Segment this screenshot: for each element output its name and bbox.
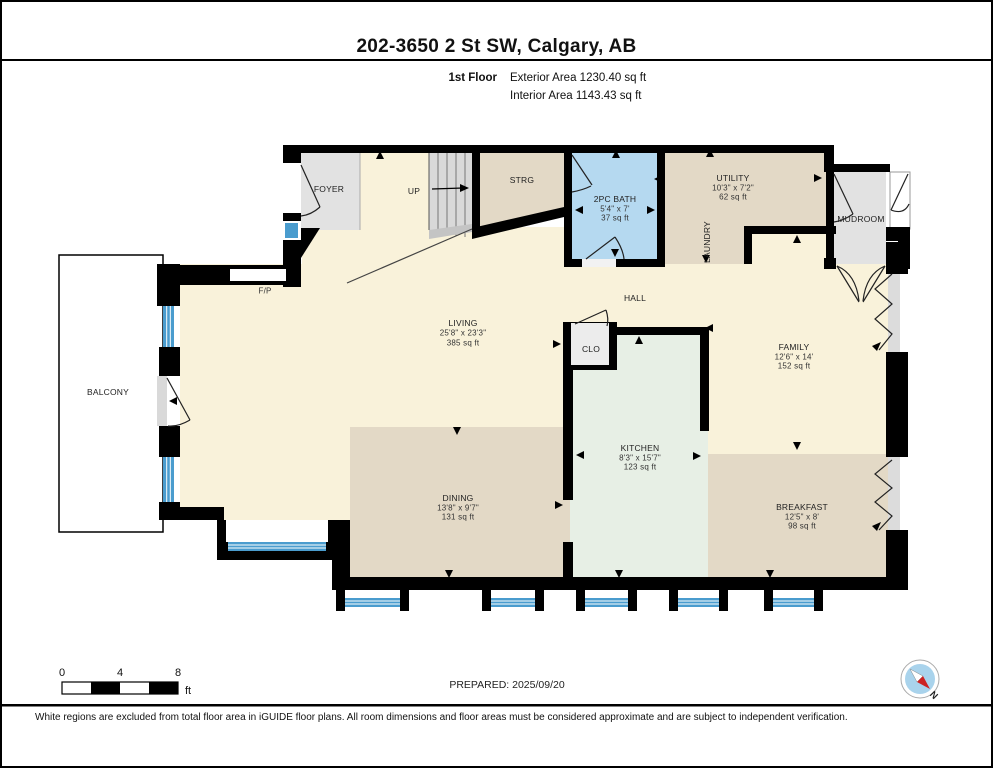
room-label-hall: HALL — [624, 293, 646, 303]
room-area-bath: 37 sq ft — [601, 214, 629, 223]
room-label-dining: DINING — [443, 493, 474, 503]
exterior-area: Exterior Area 1230.40 sq ft — [510, 72, 646, 84]
window — [773, 598, 814, 607]
floorplan-page: 202-3650 2 St SW, Calgary, AB 1st Floor … — [0, 0, 993, 768]
page-title: 202-3650 2 St SW, Calgary, AB — [2, 36, 991, 58]
window — [491, 598, 535, 607]
window — [678, 598, 719, 607]
room-fills — [59, 153, 910, 590]
room-area-family: 152 sq ft — [778, 362, 811, 371]
room-label-laundry: LAUNDRY — [702, 221, 712, 263]
room-area-kitchen: 123 sq ft — [624, 463, 657, 472]
bay-window-glass — [228, 542, 326, 551]
window — [285, 223, 298, 238]
room-dims-living: 25'8" x 23'3" — [440, 329, 486, 338]
room-label-foyer: FOYER — [314, 184, 344, 194]
bath-door-opening — [582, 259, 616, 267]
breakfast-folding-door-glass — [888, 457, 900, 535]
room-label-family: FAMILY — [779, 342, 810, 352]
room-label-balcony: BALCONY — [87, 387, 129, 397]
floor-label: 1st Floor — [382, 72, 497, 84]
fireplace-inset — [230, 269, 286, 281]
stairs-floor — [429, 153, 472, 230]
room-dims-family: 12'6" x 14' — [775, 353, 814, 362]
room-label-clo: CLO — [582, 344, 600, 354]
room-dims-utility: 10'3" x 7'2" — [712, 184, 754, 193]
room-area-utility: 62 sq ft — [719, 193, 747, 202]
window — [585, 598, 628, 607]
room-label-strg: STRG — [510, 175, 534, 185]
room-label-kitchen: KITCHEN — [621, 443, 660, 453]
room-area-living: 385 sq ft — [447, 339, 480, 348]
room-dims-kitchen: 8'3" x 15'7" — [619, 454, 661, 463]
interior-area: Interior Area 1143.43 sq ft — [510, 90, 641, 102]
floorplan-drawing — [2, 2, 993, 768]
room-label-living: LIVING — [448, 318, 477, 328]
room-area-dining: 131 sq ft — [442, 513, 475, 522]
stairs-up-label: UP — [408, 186, 420, 196]
fireplace-label: F/P — [258, 287, 271, 296]
window — [163, 457, 174, 502]
disclaimer-text: White regions are excluded from total fl… — [35, 712, 848, 723]
room-area-breakfast: 98 sq ft — [788, 522, 816, 531]
scale-start: 0 — [59, 667, 65, 679]
scale-unit: ft — [185, 685, 191, 697]
bay-window-interior — [226, 520, 328, 542]
room-dims-bath: 5'4" x 7' — [600, 205, 630, 214]
room-label-bath: 2PC BATH — [594, 194, 637, 204]
room-label-breakfast: BREAKFAST — [776, 502, 828, 512]
mudroom-landing — [890, 172, 910, 229]
room-dims-breakfast: 12'5" x 8' — [785, 513, 819, 522]
window — [163, 306, 174, 347]
window — [345, 598, 400, 607]
family-folding-door-glass — [888, 270, 900, 362]
scale-end: 8 — [175, 667, 181, 679]
room-label-utility: UTILITY — [716, 173, 749, 183]
room-label-mudroom: MUDROOM — [837, 214, 884, 224]
scale-mid: 4 — [117, 667, 123, 679]
scale-bar — [62, 682, 178, 694]
foyer-door-opening — [283, 163, 301, 213]
prepared-date: PREPARED: 2025/09/20 — [402, 679, 612, 691]
balcony-door-leaf — [157, 376, 167, 426]
hall-upper-floor — [752, 234, 828, 266]
room-dims-dining: 13'8" x 9'7" — [437, 504, 479, 513]
